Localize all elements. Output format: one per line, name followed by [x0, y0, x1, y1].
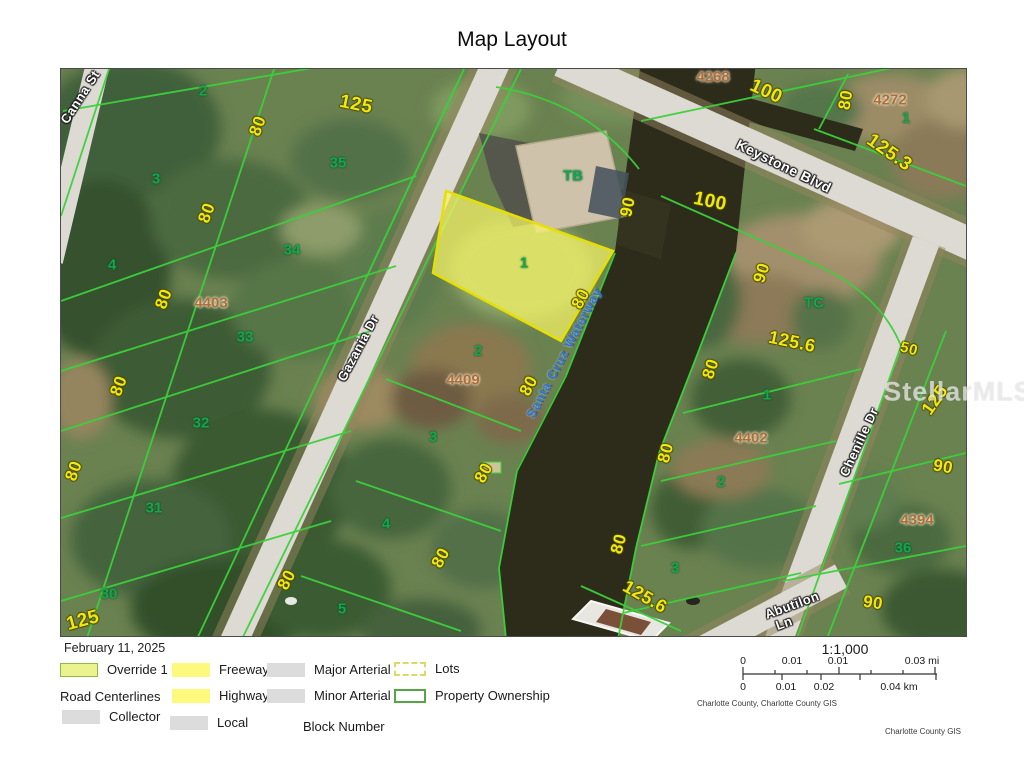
- dim-label: 50: [898, 339, 919, 360]
- highway-swatch: [172, 689, 210, 703]
- lotnum-label: TC: [804, 295, 824, 312]
- dim-label: 90: [749, 260, 774, 285]
- lotnum-label: 32: [193, 415, 210, 432]
- km-tick: 0.01: [776, 681, 796, 693]
- lotnum-label: 2: [717, 474, 725, 491]
- legend-label: Major Arterial: [314, 662, 391, 677]
- blocknum-label: 4402: [734, 430, 767, 447]
- legend-label: Collector: [109, 709, 160, 724]
- map-layout-page: { "title": "Map Layout", "date": "Februa…: [0, 0, 1024, 768]
- dim-label: 125.3: [862, 130, 916, 177]
- dim-label: 80: [698, 356, 723, 381]
- blocknum-label: 4409: [446, 372, 479, 389]
- lotnum-label: 4: [108, 257, 116, 274]
- map-canvas: Canna StGazania DrKeystone BlvdChenille …: [60, 68, 967, 637]
- local-swatch: [170, 716, 208, 730]
- minor-arterial-swatch: [267, 689, 305, 703]
- lotnum-label: TB: [563, 168, 583, 185]
- dim-label: 80: [106, 373, 132, 399]
- lotnum-label: 1: [763, 387, 771, 404]
- lotnum-label: 3: [429, 429, 437, 446]
- lotnum-label: 35: [330, 155, 347, 172]
- legend-label: Freeway: [219, 662, 269, 677]
- freeway-swatch: [172, 663, 210, 677]
- legend-item-major-arterial: Major Arterial: [267, 662, 391, 677]
- scale-attribution: Charlotte County, Charlotte County GIS: [697, 699, 837, 708]
- km-tick: 0: [740, 681, 746, 693]
- street-label: Keystone Blvd: [734, 136, 834, 196]
- blocknum-label: 4394: [900, 512, 933, 529]
- dim-label: 125: [64, 606, 102, 636]
- dim-label: 80: [245, 113, 271, 139]
- legend-road-centerlines: Road Centerlines: [60, 689, 160, 704]
- dim-label: 100: [691, 188, 728, 216]
- dim-label: 80: [151, 286, 177, 312]
- legend-item-local: Local: [170, 715, 248, 730]
- street-label: Gazania Dr: [334, 312, 381, 383]
- lotnum-label: 36: [895, 540, 912, 557]
- legend-label: Highway: [219, 688, 269, 703]
- legend-label: Lots: [435, 661, 460, 676]
- lotnum-label: 3: [152, 171, 160, 188]
- dim-label: 80: [470, 460, 497, 487]
- dim-label: 80: [61, 458, 87, 484]
- dim-label: 80: [427, 545, 454, 572]
- lotnum-label: 30: [101, 586, 118, 603]
- major-arterial-swatch: [267, 663, 305, 677]
- legend-label: Local: [217, 715, 248, 730]
- dim-label: 80: [273, 567, 300, 594]
- lotnum-label: 31: [146, 500, 163, 517]
- km-tick: 0.04 km: [880, 681, 917, 693]
- dim-label: 125.6: [619, 576, 671, 618]
- legend-label: Property Ownership: [435, 688, 550, 703]
- lotnum-label: 2: [474, 343, 482, 360]
- legend-item-minor-arterial: Minor Arterial: [267, 688, 391, 703]
- legend-item-lots: Lots: [394, 661, 460, 676]
- legend-label: Minor Arterial: [314, 688, 391, 703]
- page-title: Map Layout: [0, 28, 1024, 52]
- dim-label: 90: [616, 195, 640, 219]
- dim-label: 125.6: [767, 327, 818, 357]
- km-tick: 0.02: [814, 681, 834, 693]
- legend-item-highway: Highway: [172, 688, 269, 703]
- lotnum-label: 2: [199, 83, 207, 100]
- lotnum-label: 5: [338, 601, 346, 618]
- map-date: February 11, 2025: [64, 641, 165, 655]
- lots-swatch: [394, 662, 426, 676]
- dim-label: 100: [746, 75, 785, 109]
- dim-label: 80: [834, 88, 857, 111]
- property-ownership-swatch: [394, 689, 426, 703]
- scale-bar: [740, 666, 940, 682]
- stellar-mls-watermark: StellarMLS: [883, 377, 1024, 408]
- street-label: Chenille Dr: [837, 405, 882, 479]
- map-labels: Canna StGazania DrKeystone BlvdChenille …: [61, 69, 966, 636]
- lotnum-label: 1: [902, 110, 910, 127]
- lotnum-label: 3: [671, 560, 679, 577]
- blocknum-label: 4268: [696, 69, 729, 86]
- dim-label: 90: [931, 455, 954, 478]
- dim-label: 90: [862, 592, 885, 615]
- dim-label: 80: [607, 532, 631, 556]
- legend-item-freeway: Freeway: [172, 662, 269, 677]
- lotnum-label: 34: [284, 242, 301, 259]
- dim-label: 125: [337, 91, 374, 119]
- blocknum-label: 4403: [194, 295, 227, 312]
- gis-credit: Charlotte County GIS: [885, 727, 961, 736]
- blocknum-label: 4272: [873, 92, 906, 109]
- street-label: Abutilon: [763, 588, 821, 621]
- street-label: Canna St: [60, 68, 103, 126]
- lotnum-label: 33: [237, 329, 254, 346]
- legend-item-property-ownership: Property Ownership: [394, 688, 550, 703]
- dim-label: 80: [194, 200, 220, 226]
- lotnum-label: 1: [520, 255, 528, 272]
- water-label: Santa Cruz Waterway: [524, 285, 605, 420]
- lotnum-label: 4: [382, 516, 390, 533]
- legend-label: Override 1: [107, 662, 168, 677]
- dim-label: 80: [654, 441, 678, 465]
- legend-block-number: Block Number: [303, 719, 385, 734]
- legend-item-collector: Collector: [62, 709, 160, 724]
- legend-item-override: Override 1: [60, 662, 168, 677]
- override-swatch: [60, 663, 98, 677]
- collector-swatch: [62, 710, 100, 724]
